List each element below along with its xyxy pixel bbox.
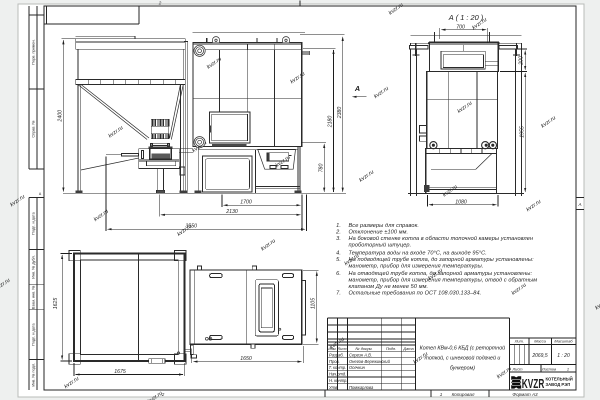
svg-text:1675: 1675 [114,369,126,375]
svg-text:1650: 1650 [240,356,252,362]
svg-text:1: 1 [567,366,569,371]
svg-text:1 : 20: 1 : 20 [557,353,570,359]
svg-text:Лист: Лист [336,346,348,351]
svg-text:Справ. №: Справ. № [32,120,36,137]
svg-text:Подп. и дата: Подп. и дата [32,211,36,234]
svg-text:Копировал: Копировал [452,392,475,397]
svg-text:топкой, с шнековой подачей и: топкой, с шнековой подачей и [424,355,500,362]
svg-text:Подп.: Подп. [386,346,396,351]
svg-text:Остальные требования по ОСТ 10: Остальные требования по ОСТ 108.030.133–… [349,290,482,296]
svg-text:№ докум.: № докум. [355,346,372,351]
svg-text:Температура воды на входе 70°С: Температура воды на входе 70°С, на выход… [349,250,487,256]
svg-text:Инв. № подл.: Инв. № подл. [32,363,36,387]
svg-text:3550: 3550 [185,223,197,229]
svg-text:1.: 1. [336,223,341,229]
svg-text:Осечкин: Осечкин [349,365,366,370]
svg-text:Нач.отд.: Нач.отд. [329,372,346,377]
svg-text:Инв. № дубл.: Инв. № дубл. [32,255,36,279]
svg-text:Н. контр.: Н. контр. [329,378,347,383]
svg-text:Разраб.: Разраб. [329,352,344,357]
svg-text:ЗАВОД РЭП: ЗАВОД РЭП [546,382,571,387]
svg-text:На боковой стенке котла в обла: На боковой стенке котла в области топочн… [349,235,534,242]
svg-text:Все размеры для справок.: Все размеры для справок. [349,223,419,229]
svg-text:Отклонение ±100 мм.: Отклонение ±100 мм. [349,229,409,235]
svg-text:2180: 2180 [328,116,334,129]
svg-text:2380: 2380 [337,107,343,120]
svg-text:манометр, прибор для измерения: манометр, прибор для измерения температу… [349,263,484,269]
svg-text:Котел КВм-0,6 КБД (с ретортной: Котел КВм-0,6 КБД (с ретортной [420,345,505,352]
svg-text:1625: 1625 [53,298,59,310]
svg-text:700: 700 [456,24,465,30]
svg-text:Формат А3: Формат А3 [512,392,538,397]
svg-text:1080: 1080 [455,199,467,205]
svg-text:1: 1 [440,392,443,397]
svg-text:2: 2 [161,392,165,397]
svg-text:Подп. и дата: Подп. и дата [32,323,36,346]
svg-text:Лит.: Лит. [514,339,524,344]
svg-text:Масштаб: Масштаб [554,339,573,344]
svg-text:Утв.: Утв. [329,385,338,390]
svg-text:KVZR: KVZR [522,377,545,391]
svg-text:2: 2 [158,1,162,6]
svg-text:5.: 5. [336,257,341,263]
svg-text:Листов: Листов [541,366,556,371]
svg-text:Дата: Дата [402,346,414,351]
svg-text:1955: 1955 [519,126,525,138]
svg-text:2069,5: 2069,5 [531,353,548,359]
svg-text:А: А [354,84,360,93]
svg-text:Лист: Лист [511,366,523,371]
svg-text:бункером): бункером) [450,366,475,372]
svg-text:1700: 1700 [240,199,252,205]
svg-text:КОТЕЛЬНЫЙ: КОТЕЛЬНЫЙ [546,377,573,382]
svg-text:Перв. примен.: Перв. примен. [32,39,36,64]
svg-text:клапаном Ду не менее 50 мм.: клапаном Ду не менее 50 мм. [349,284,429,290]
svg-text:3.: 3. [336,236,341,242]
svg-text:Взам. инв. №: Взам. инв. № [32,286,36,310]
svg-text:Т. контр.: Т. контр. [329,365,347,370]
svg-text:Помжарлова: Помжарлова [349,385,374,390]
svg-text:Сергин А.В.: Сергин А.В. [349,352,372,357]
svg-text:2130: 2130 [225,209,238,215]
svg-text:6.: 6. [336,271,341,277]
svg-text:4.: 4. [336,250,341,256]
svg-text:2400: 2400 [57,110,63,123]
svg-text:2.: 2. [335,229,341,235]
svg-text:А ( 1 : 20 ): А ( 1 : 20 ) [448,13,484,22]
svg-text:780: 780 [318,164,324,173]
svg-text:проботорный штуцер.: проботорный штуцер. [349,241,412,248]
svg-text:Онегов-Вережинский: Онегов-Вережинский [349,359,391,364]
svg-text:На подводящей трубе котла, до: На подводящей трубе котла, до запорной а… [349,256,535,263]
svg-text:200: 200 [519,56,525,66]
svg-text:Изм.: Изм. [328,346,336,351]
svg-text:7.: 7. [336,290,341,296]
svg-text:Масса: Масса [534,339,546,344]
svg-text:манометр, прибор для измерения: манометр, прибор для измерения температу… [349,277,538,283]
svg-text:А: А [577,202,581,207]
svg-text:Пров.: Пров. [329,359,340,364]
svg-text:1105: 1105 [310,298,316,309]
svg-text:На отводящей трубе котла, до з: На отводящей трубе котла, до запорной ар… [349,270,533,277]
